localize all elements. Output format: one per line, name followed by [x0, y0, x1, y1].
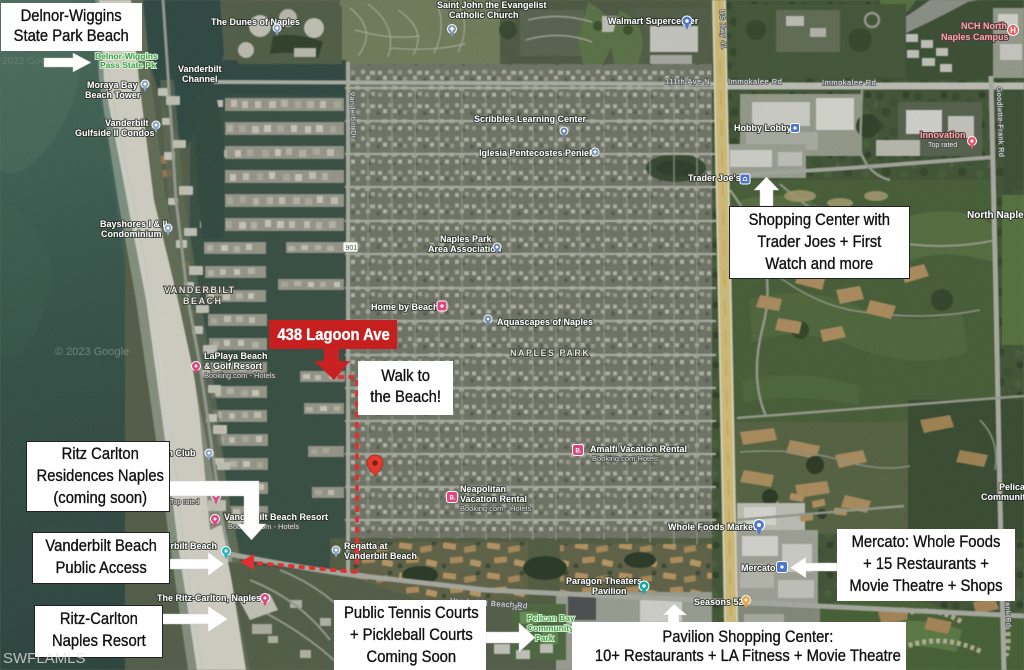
svg-text:Channel: Channel [182, 74, 218, 84]
svg-text:Aquascapes of Naples: Aquascapes of Naples [497, 317, 593, 327]
svg-text:Booking.com · Hotels: Booking.com · Hotels [460, 504, 532, 513]
svg-text:Vanderbilt Beach Resort: Vanderbilt Beach Resort [224, 512, 328, 522]
svg-text:Vanderbilt Beach: Vanderbilt Beach [344, 551, 417, 561]
svg-text:© 2023 Google: © 2023 Google [55, 346, 129, 358]
svg-text:Naples Park: Naples Park [440, 234, 493, 244]
svg-text:NAPLES PARK: NAPLES PARK [510, 348, 590, 358]
svg-text:Vanderbilt: Vanderbilt [105, 118, 149, 128]
svg-text:VANDERBILT: VANDERBILT [164, 285, 236, 295]
svg-text:Pass State Pk: Pass State Pk [100, 60, 156, 70]
svg-text:Beach Tower: Beach Tower [85, 90, 141, 100]
svg-text:Immokalee Rd: Immokalee Rd [728, 77, 782, 86]
svg-text:Pelican Bay: Pelican Bay [527, 613, 575, 623]
svg-text:111th Ave N: 111th Ave N [665, 77, 710, 86]
svg-text:BEACH: BEACH [183, 296, 223, 306]
svg-text:Bayshores I & II: Bayshores I & II [100, 219, 168, 229]
svg-text:The Dunes of Naples: The Dunes of Naples [211, 17, 300, 27]
svg-text:Vanderbilt: Vanderbilt [178, 64, 222, 74]
svg-text:Pelica: Pelica [999, 482, 1024, 492]
svg-text:901: 901 [346, 245, 358, 252]
svg-text:US Hwy 41: US Hwy 41 [718, 10, 727, 50]
svg-text:Top rated: Top rated [928, 142, 957, 149]
svg-text:Paragon Theaters: Paragon Theaters [566, 576, 642, 586]
svg-text:Amalfi Vacation Rental: Amalfi Vacation Rental [590, 444, 687, 454]
svg-text:Moraya Bay: Moraya Bay [87, 80, 138, 90]
svg-text:& Golf Resort: & Golf Resort [204, 361, 262, 371]
svg-text:Seasons 52: Seasons 52 [694, 597, 744, 607]
svg-text:Naples Campus: Naples Campus [941, 32, 1009, 42]
svg-text:Saint John the Evangelist: Saint John the Evangelist [437, 0, 547, 10]
svg-text:The Ritz-Carlton, Naples: The Ritz-Carlton, Naples [157, 593, 261, 603]
svg-text:Whole Foods Market: Whole Foods Market [668, 522, 756, 532]
svg-text:Booking.com Hotels: Booking.com Hotels [592, 454, 659, 463]
svg-text:B.: B. [576, 449, 582, 455]
svg-text:Vanderbilt Dr: Vanderbilt Dr [348, 92, 357, 139]
svg-text:Hobby Lobby: Hobby Lobby [734, 123, 792, 133]
svg-text:Condominium: Condominium [101, 229, 162, 239]
svg-text:North Naples: North Naples [967, 210, 1024, 221]
svg-text:Community: Community [527, 623, 574, 633]
svg-text:2023 Goo: 2023 Goo [2, 56, 46, 67]
svg-text:Vacation Rental: Vacation Rental [460, 494, 527, 504]
svg-text:Innovation: Innovation [920, 130, 966, 140]
svg-text:LaPlaya Beach: LaPlaya Beach [204, 351, 268, 361]
svg-text:Area Association: Area Association [428, 244, 501, 254]
svg-text:Iglesia Pentecostes Peniel: Iglesia Pentecostes Peniel [479, 148, 592, 158]
svg-text:NCH North: NCH North [961, 21, 1007, 31]
svg-text:B.: B. [450, 496, 456, 502]
svg-text:Pavilion: Pavilion [592, 586, 627, 596]
svg-text:Goodlette-Frank Rd: Goodlette-Frank Rd [995, 87, 1004, 158]
svg-text:Home by Beach: Home by Beach [371, 302, 439, 312]
svg-text:H: H [1010, 26, 1016, 35]
svg-text:Scribbles Learning Center: Scribbles Learning Center [474, 114, 587, 124]
svg-text:Park: Park [535, 633, 554, 643]
svg-text:Regatta at: Regatta at [344, 541, 388, 551]
svg-text:Catholic Church: Catholic Church [449, 10, 519, 20]
svg-text:Top rated: Top rated [170, 499, 199, 506]
svg-text:Trader Joe's: Trader Joe's [688, 173, 741, 183]
svg-text:Immokalee Rd: Immokalee Rd [822, 78, 876, 87]
svg-text:Community: Community [981, 492, 1024, 502]
svg-text:Gulfside II Condos: Gulfside II Condos [75, 128, 155, 138]
svg-text:Mercato: Mercato [741, 563, 776, 573]
svg-text:Booking.com - Hotels: Booking.com - Hotels [204, 371, 276, 380]
svg-text:Neapolitan: Neapolitan [460, 484, 506, 494]
